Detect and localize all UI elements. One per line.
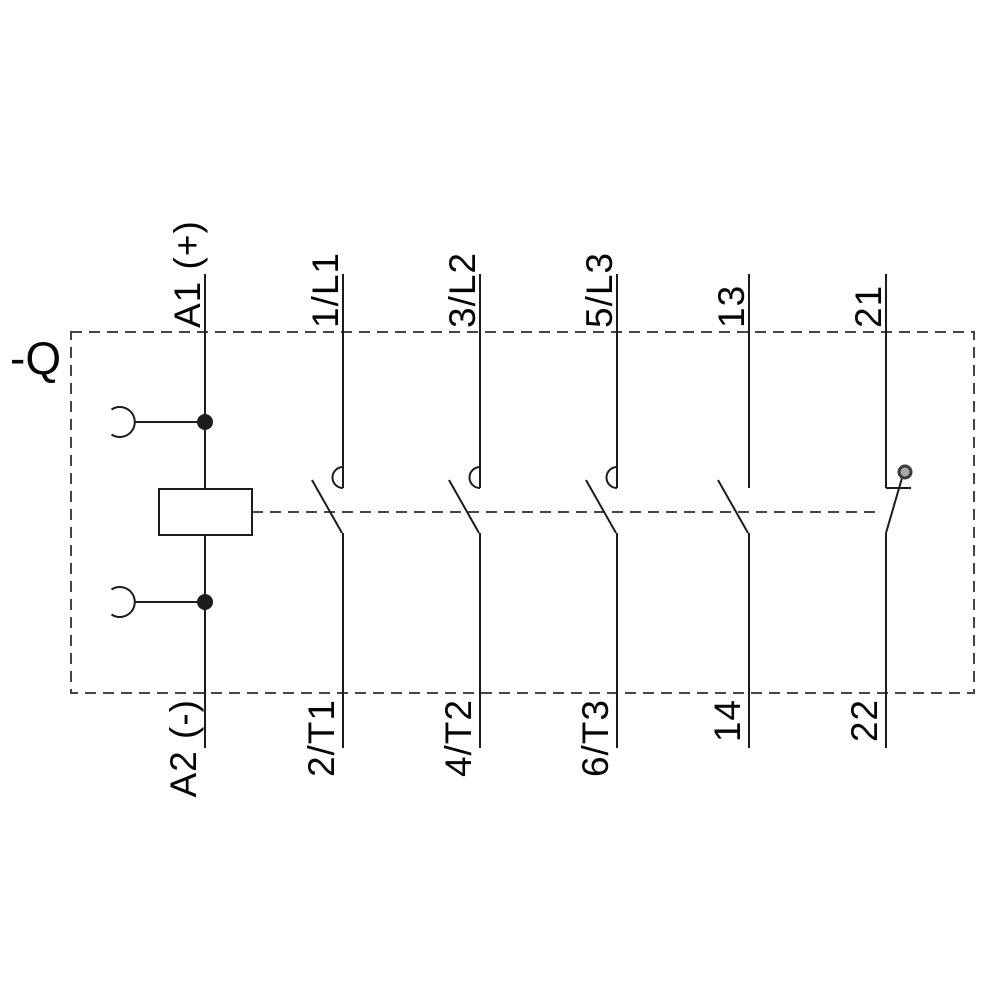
terminal-label-22: 22 — [844, 699, 885, 742]
nc-pivot — [899, 466, 911, 478]
fixed-contact-arc-icon — [607, 467, 618, 488]
dashed-strokes — [71, 332, 974, 693]
contact-blade — [312, 480, 342, 533]
terminal-label-14: 14 — [707, 699, 748, 742]
terminal-label-21: 21 — [848, 285, 889, 328]
nc-pivot-circle-icon — [899, 466, 911, 478]
contactor-wiring-diagram: -Q A1 (+) 1/L1 3/L2 5/L3 13 21 A2 (-) 2/… — [0, 0, 1000, 1000]
fixed-contact-arc-icon — [470, 467, 481, 488]
a2-socket-arc-icon — [112, 587, 135, 617]
junction-dot-a1 — [197, 414, 213, 430]
device-designation-label: -Q — [10, 332, 61, 384]
pole-21-22 — [886, 274, 911, 748]
terminal-label-5l3: 5/L3 — [579, 252, 620, 328]
contact-blade — [449, 480, 479, 533]
terminal-label-6t3: 6/T3 — [575, 699, 616, 777]
terminal-label-1l1: 1/L1 — [305, 252, 346, 328]
junction-dot-a2 — [197, 594, 213, 610]
terminal-label-13: 13 — [711, 285, 752, 328]
terminal-label-a2: A2 (-) — [163, 699, 204, 798]
schematic-page: -Q A1 (+) 1/L1 3/L2 5/L3 13 21 A2 (-) 2/… — [0, 0, 1000, 1000]
fixed-contact-arc-icon — [333, 467, 344, 488]
terminal-label-2t1: 2/T1 — [301, 699, 342, 777]
terminal-labels: -Q A1 (+) 1/L1 3/L2 5/L3 13 21 A2 (-) 2/… — [10, 220, 889, 797]
coil-symbol — [159, 489, 252, 535]
contact-blade — [718, 480, 748, 533]
a1-socket-arc-icon — [112, 407, 135, 437]
coil-branch — [112, 274, 253, 748]
terminal-label-4t2: 4/T2 — [438, 699, 479, 777]
terminal-label-3l2: 3/L2 — [442, 252, 483, 328]
terminal-label-a1: A1 (+) — [167, 220, 208, 328]
contact-blade — [886, 478, 902, 533]
contact-blade — [586, 480, 616, 533]
